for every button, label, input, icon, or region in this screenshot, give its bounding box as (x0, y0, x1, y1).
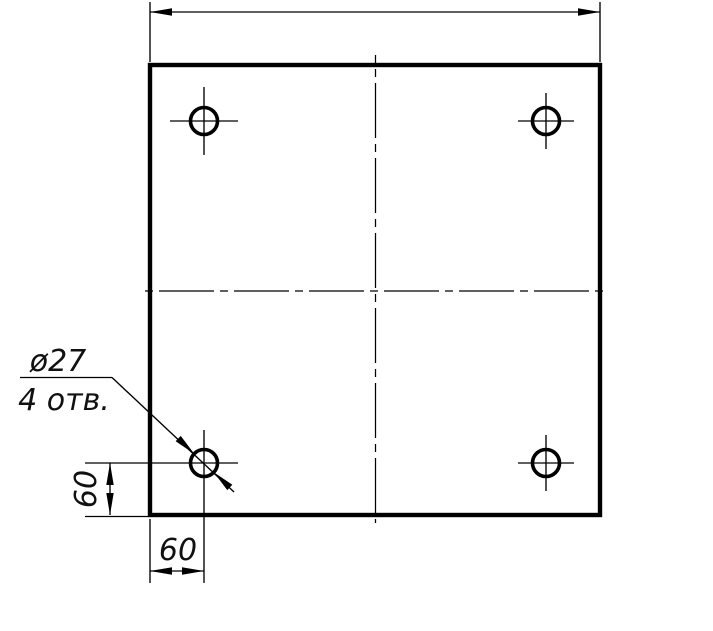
dimension-top-width (150, 2, 600, 62)
hole-callout: ø27 4 отв. (18, 344, 234, 492)
bottom-dim-arrow-right (182, 567, 204, 574)
bottom-dim-arrow-left (150, 567, 172, 574)
hole-count-label: 4 отв. (18, 383, 110, 418)
callout-leader-line (112, 378, 234, 493)
top-dim-arrow-left (150, 8, 172, 15)
left-dim-value: 60 (69, 470, 104, 508)
left-dim-arrow-up (106, 463, 113, 485)
hole-crosshairs (85, 87, 574, 583)
drawing-canvas: 60 60 ø27 4 отв. (0, 0, 713, 631)
hole-diameter-label: ø27 (29, 344, 87, 379)
bottom-dim-value: 60 (159, 533, 197, 568)
dimension-bottom-60: 60 (150, 519, 204, 583)
top-dim-arrow-right (578, 8, 600, 15)
left-dim-arrow-down (106, 493, 113, 515)
dimension-left-60: 60 (69, 463, 149, 517)
drawing-sheet: 60 60 ø27 4 отв. (0, 0, 713, 631)
